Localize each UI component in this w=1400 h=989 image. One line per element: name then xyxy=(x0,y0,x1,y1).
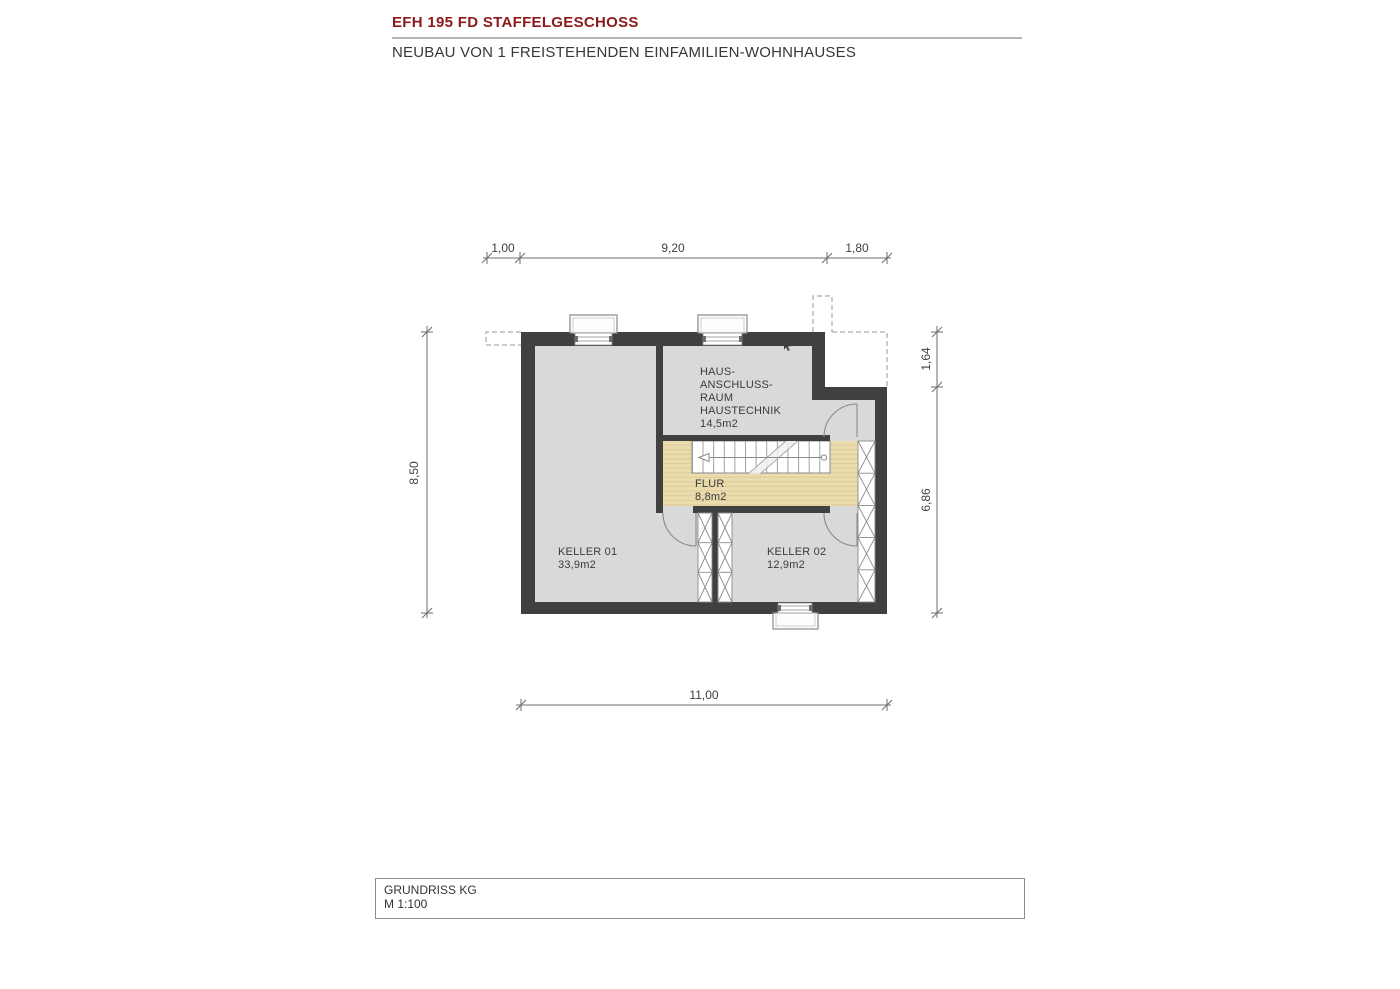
drawing-sheet: EFH 195 FD STAFFELGESCHOSS NEUBAU VON 1 … xyxy=(0,0,1400,989)
dim-bottom: 11,00 xyxy=(689,688,718,702)
wall-top xyxy=(521,332,825,346)
dashed-overhang-right xyxy=(832,332,887,387)
drawing-title: GRUNDRISS KG xyxy=(384,883,1024,897)
dim-right-lower: 6,86 xyxy=(919,488,933,512)
window-top-2 xyxy=(698,315,747,345)
room-area-flur: 8,8m2 xyxy=(695,491,727,503)
svg-text:RAUM: RAUM xyxy=(700,392,733,404)
stair-walk-line-start xyxy=(821,455,826,460)
window-top-1 xyxy=(570,315,617,345)
dashed-shaft-top xyxy=(813,296,832,332)
svg-text:KELLER 02: KELLER 02 xyxy=(767,546,826,558)
wall-notch-bottom xyxy=(812,387,887,400)
wall-right-lower xyxy=(875,387,887,614)
svg-text:HAUSTECHNIK: HAUSTECHNIK xyxy=(700,405,782,417)
room-area-keller02: 12,9m2 xyxy=(767,559,805,571)
svg-text:HAUS-: HAUS- xyxy=(700,366,735,378)
wall-left xyxy=(521,332,535,614)
wall-bottom xyxy=(521,602,887,614)
light-well xyxy=(773,613,818,629)
title-block: GRUNDRISS KG M 1:100 xyxy=(375,878,1025,919)
floor-plan-drawing: HAUS- ANSCHLUSS- RAUM HAUSTECHNIK 14,5m2… xyxy=(0,0,1400,989)
dim-top-right: 1,80 xyxy=(845,241,869,255)
svg-text:KELLER 01: KELLER 01 xyxy=(558,546,617,558)
dimension-top xyxy=(482,252,892,264)
staircase xyxy=(692,440,830,474)
room-label-flur: FLUR 8,8m2 xyxy=(695,478,727,503)
dim-right-upper: 1,64 xyxy=(919,347,933,371)
wall-interior-vertical xyxy=(656,346,663,513)
drawing-scale: M 1:100 xyxy=(384,897,1024,911)
svg-text:FLUR: FLUR xyxy=(695,478,725,490)
dim-top-left: 1,00 xyxy=(491,241,515,255)
window-bottom xyxy=(773,603,818,629)
dimension-left xyxy=(421,326,433,618)
svg-text:ANSCHLUSS-: ANSCHLUSS- xyxy=(700,379,773,391)
dim-top-middle: 9,20 xyxy=(661,241,685,255)
room-area-haustechnik: 14,5m2 xyxy=(700,418,738,430)
wall-keller-partition-core xyxy=(712,513,718,602)
wall-flur-keller xyxy=(693,506,830,513)
wall-haustechnik-flur xyxy=(663,435,830,441)
room-area-keller01: 33,9m2 xyxy=(558,559,596,571)
dim-left: 8,50 xyxy=(407,461,421,485)
dashed-overhang-left xyxy=(486,332,521,345)
